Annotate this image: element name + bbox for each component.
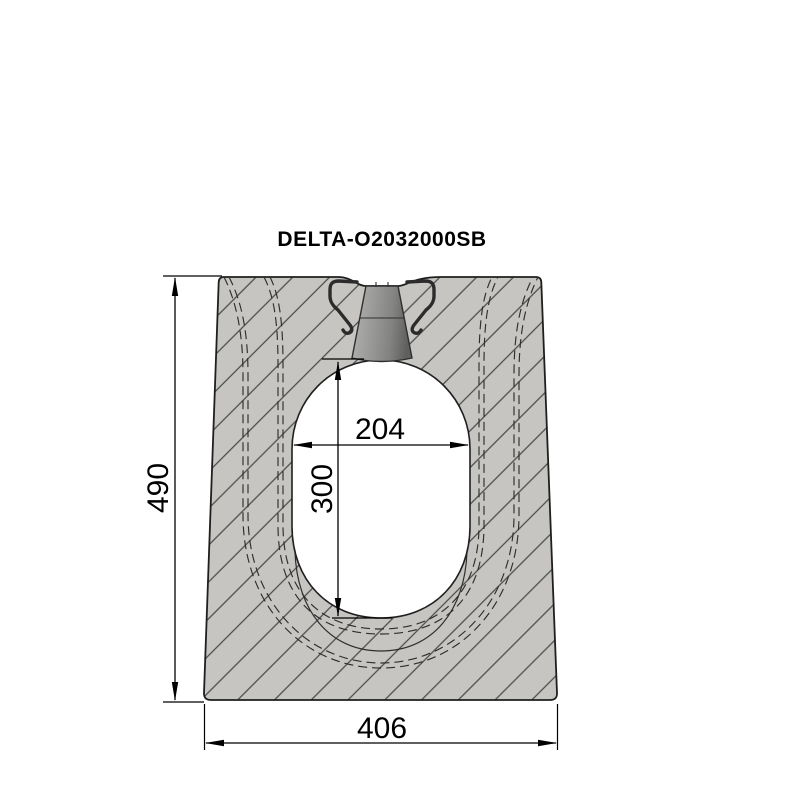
dim-406-arrow-left [205,740,224,746]
dim-bottom-width: 406 [205,704,558,750]
drawing-title: DELTA-O2032000SB [277,228,486,251]
dim-490-arrow-bottom [172,682,178,701]
dim-406-arrow-right [538,740,557,746]
dim-300-label: 300 [306,464,339,514]
dim-406-label: 406 [357,712,407,745]
technical-drawing: DELTA-O2032000SB [0,0,800,800]
dim-490-label: 490 [142,463,175,513]
dim-490-arrow-top [172,277,178,296]
dim-204-label: 204 [355,413,405,446]
drawing-canvas: DELTA-O2032000SB [0,0,800,800]
